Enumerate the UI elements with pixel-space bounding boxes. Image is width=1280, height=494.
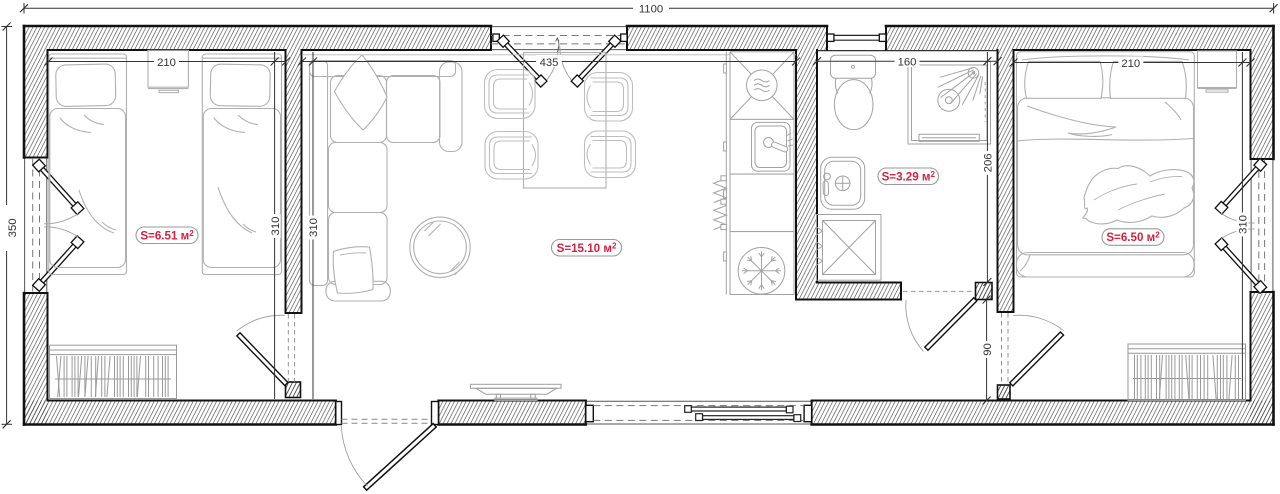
svg-text:310: 310 bbox=[270, 217, 282, 236]
svg-text:310: 310 bbox=[308, 218, 320, 237]
svg-text:210: 210 bbox=[157, 57, 176, 69]
svg-text:S=15.10 м2: S=15.10 м2 bbox=[557, 241, 617, 255]
svg-text:210: 210 bbox=[1121, 58, 1140, 70]
svg-text:435: 435 bbox=[540, 57, 559, 69]
svg-text:S=6.51 м2: S=6.51 м2 bbox=[140, 229, 194, 243]
svg-text:90: 90 bbox=[982, 343, 994, 356]
svg-text:S=6.50 м2: S=6.50 м2 bbox=[1106, 231, 1160, 245]
svg-text:S=3.29 м2: S=3.29 м2 bbox=[882, 170, 936, 184]
svg-text:1100: 1100 bbox=[639, 4, 663, 16]
svg-text:160: 160 bbox=[898, 57, 917, 69]
svg-text:350: 350 bbox=[7, 218, 19, 237]
svg-text:206: 206 bbox=[983, 153, 995, 172]
svg-text:310: 310 bbox=[1238, 215, 1250, 234]
